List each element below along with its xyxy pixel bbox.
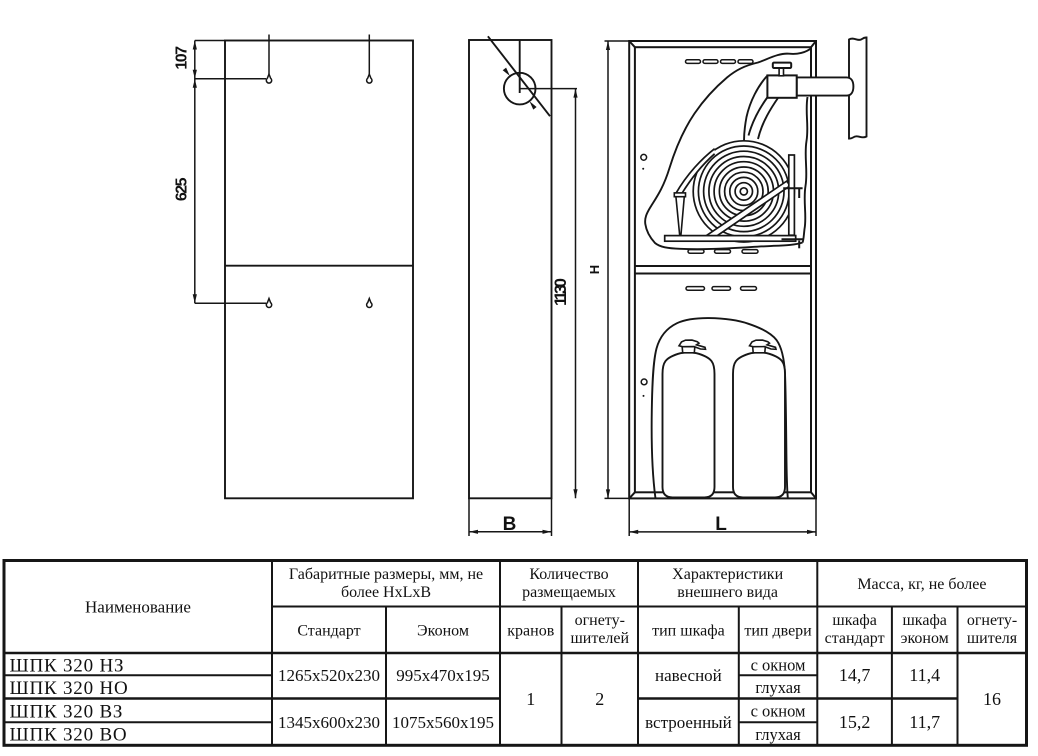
svg-text:L: L: [715, 514, 727, 535]
svg-text:1075х560х195: 1075х560х195: [392, 713, 494, 732]
svg-text:с окном: с окном: [751, 655, 806, 674]
svg-text:15,2: 15,2: [839, 712, 871, 732]
svg-text:с окном: с окном: [751, 701, 806, 720]
svg-text:1345х600х230: 1345х600х230: [278, 713, 380, 732]
svg-text:размещаемых: размещаемых: [522, 584, 616, 601]
svg-text:внешнего вида: внешнего вида: [677, 584, 778, 601]
svg-text:Наименование: Наименование: [85, 598, 191, 617]
svg-text:1130: 1130: [551, 279, 570, 306]
svg-text:14,7: 14,7: [839, 665, 871, 685]
svg-text:ШПК 320 НЗ: ШПК 320 НЗ: [10, 655, 125, 676]
svg-text:995х470х195: 995х470х195: [396, 666, 490, 685]
svg-text:более НхLхВ: более НхLхВ: [341, 584, 431, 601]
svg-text:16: 16: [983, 689, 1001, 709]
svg-text:11,7: 11,7: [909, 712, 940, 732]
svg-text:глухая: глухая: [755, 678, 801, 697]
svg-text:шителя: шителя: [967, 630, 1018, 647]
svg-text:встроенный: встроенный: [645, 713, 732, 732]
svg-text:тип шкафа: тип шкафа: [652, 622, 725, 639]
svg-text:шкафа: шкафа: [832, 612, 876, 629]
svg-text:стандарт: стандарт: [825, 630, 885, 647]
svg-text:H: H: [587, 265, 602, 274]
svg-text:шителей: шителей: [570, 630, 629, 647]
svg-text:ШПК 320 ВЗ: ШПК 320 ВЗ: [10, 701, 124, 722]
svg-text:Стандарт: Стандарт: [297, 622, 360, 639]
svg-text:огнету-: огнету-: [575, 612, 625, 629]
svg-text:Габаритные размеры, мм, не: Габаритные размеры, мм, не: [289, 566, 483, 583]
svg-text:эконом: эконом: [901, 630, 949, 647]
svg-text:625: 625: [174, 177, 191, 201]
svg-text:1265х520х230: 1265х520х230: [278, 666, 380, 685]
svg-text:Эконом: Эконом: [417, 622, 469, 639]
svg-text:тип двери: тип двери: [744, 622, 812, 639]
svg-text:ШПК 320 ВО: ШПК 320 ВО: [10, 725, 128, 746]
svg-text:Характеристики: Характеристики: [672, 566, 783, 583]
svg-text:навесной: навесной: [655, 666, 722, 685]
svg-text:шкафа: шкафа: [902, 612, 946, 629]
svg-text:1: 1: [526, 689, 535, 709]
svg-text:Количество: Количество: [529, 566, 608, 583]
svg-text:глухая: глухая: [755, 725, 801, 744]
svg-text:Масса, кг, не более: Масса, кг, не более: [857, 576, 986, 593]
svg-text:B: B: [503, 514, 517, 535]
svg-text:11,4: 11,4: [909, 665, 940, 685]
svg-text:огнету-: огнету-: [967, 612, 1017, 629]
svg-text:2: 2: [595, 689, 604, 709]
svg-text:ШПК 320 НО: ШПК 320 НО: [10, 678, 129, 699]
svg-text:кранов: кранов: [507, 622, 554, 639]
svg-text:107: 107: [174, 46, 191, 70]
